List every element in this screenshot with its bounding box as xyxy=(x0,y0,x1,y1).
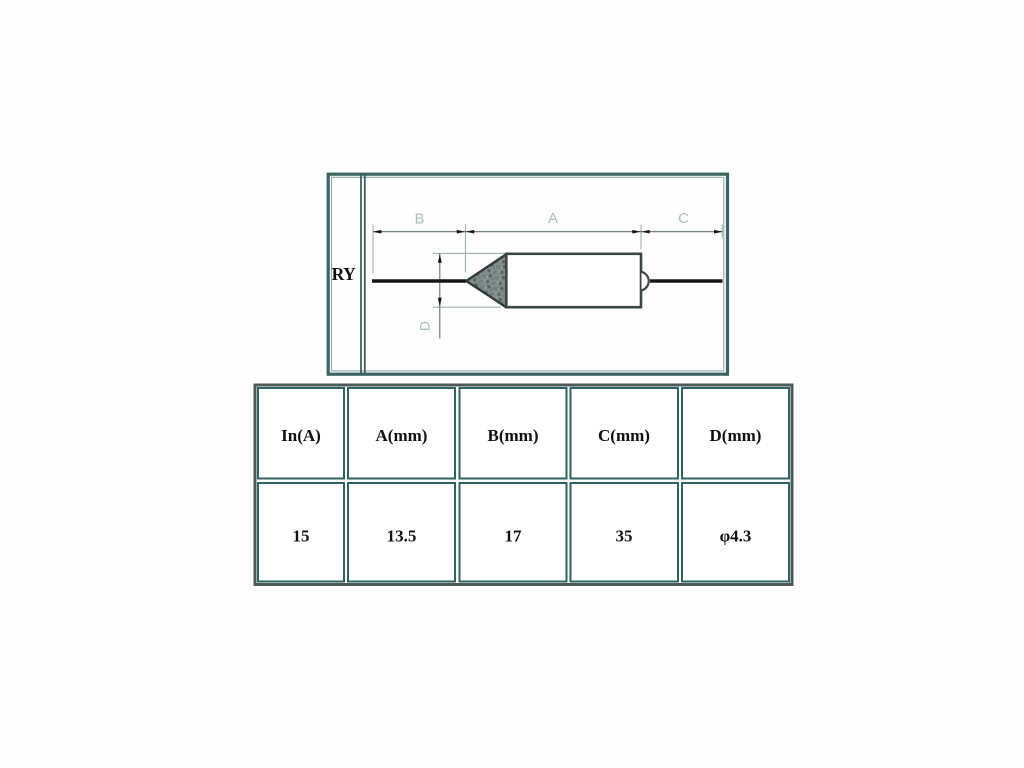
svg-text:15: 15 xyxy=(293,527,310,546)
svg-text:D(mm): D(mm) xyxy=(710,426,762,445)
svg-text:C: C xyxy=(678,210,689,227)
svg-text:D: D xyxy=(417,321,433,331)
svg-text:C(mm): C(mm) xyxy=(598,426,650,445)
svg-text:B: B xyxy=(414,211,424,228)
svg-text:In(A): In(A) xyxy=(281,426,321,445)
svg-text:A(mm): A(mm) xyxy=(376,426,428,445)
svg-text:φ4.3: φ4.3 xyxy=(720,527,752,546)
svg-text:A: A xyxy=(548,210,558,227)
svg-text:17: 17 xyxy=(505,527,523,546)
svg-text:B(mm): B(mm) xyxy=(488,426,539,445)
svg-text:35: 35 xyxy=(616,527,633,546)
svg-text:RY: RY xyxy=(332,264,357,284)
svg-text:13.5: 13.5 xyxy=(387,527,417,546)
